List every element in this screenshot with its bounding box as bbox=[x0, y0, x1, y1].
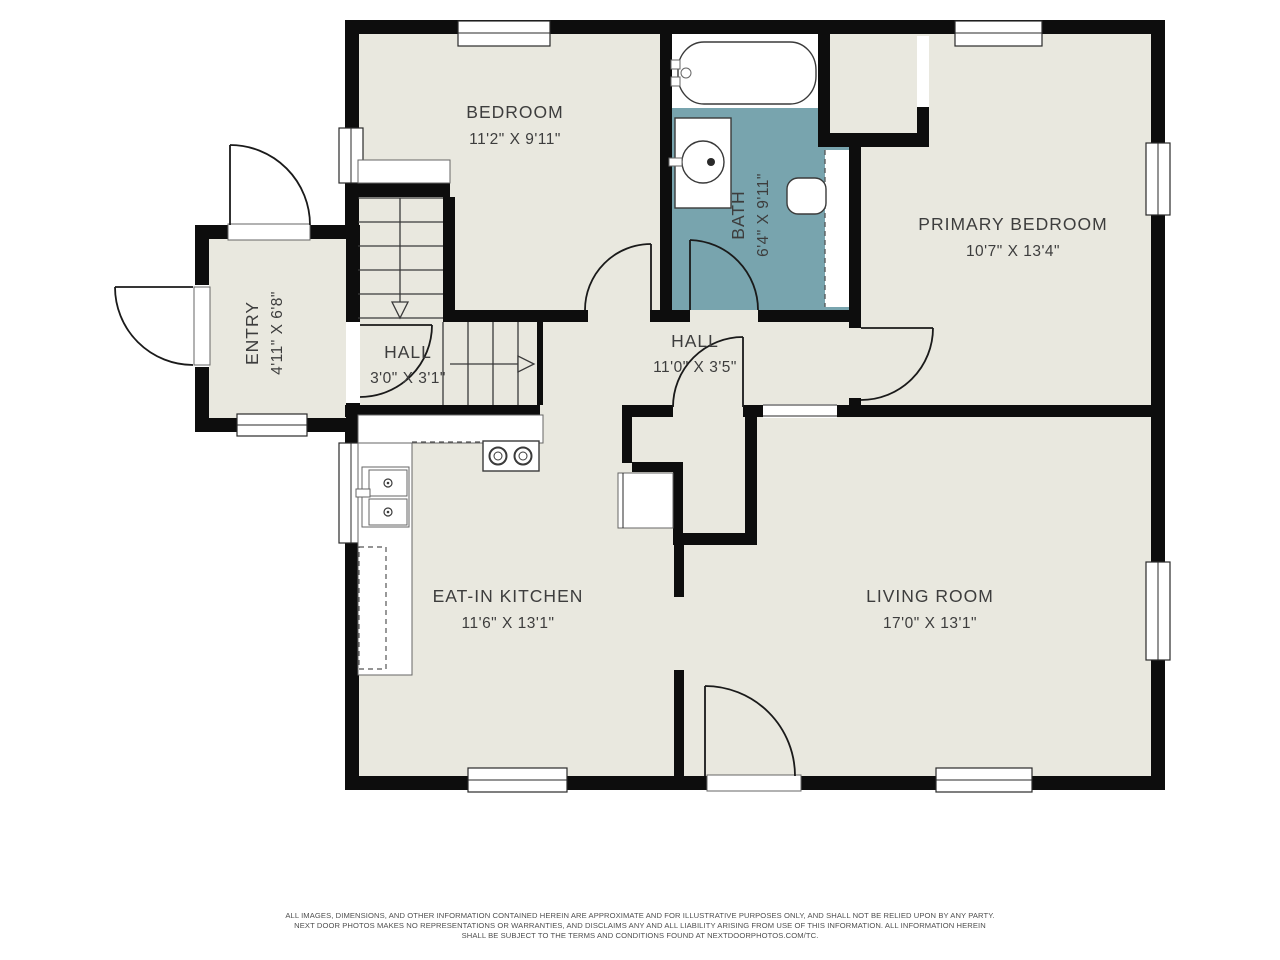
disclaimer: ALL IMAGES, DIMENSIONS, AND OTHER INFORM… bbox=[285, 911, 994, 940]
kitchen-sink-icon bbox=[356, 467, 409, 527]
hall-main-dims: 11'0" X 3'5" bbox=[653, 359, 737, 376]
utility-appliance-icon bbox=[618, 473, 673, 528]
bath-dims: 6'4" X 9'11" bbox=[755, 173, 772, 257]
back-door-sill bbox=[707, 775, 801, 791]
entry-dims: 4'11" X 6'8" bbox=[269, 291, 286, 375]
kitchen-dims: 11'6" X 13'1" bbox=[462, 615, 555, 632]
hall-small-dims: 3'0" X 3'1" bbox=[370, 370, 446, 387]
bedroom-top-window bbox=[458, 21, 550, 46]
floor-plan-page: BEDROOM 11'2" X 9'11" BATH 6'4" X 9'11" … bbox=[0, 0, 1280, 960]
stair-rail bbox=[358, 160, 450, 183]
primary-bedroom-label: PRIMARY BEDROOM bbox=[918, 214, 1107, 234]
floor-plan-drawing: BEDROOM 11'2" X 9'11" BATH 6'4" X 9'11" … bbox=[0, 0, 1280, 960]
bath-alcove bbox=[825, 150, 849, 307]
hall-small-label: HALL bbox=[384, 342, 432, 362]
kitchen-label: EAT-IN KITCHEN bbox=[433, 586, 584, 606]
entry-label: ENTRY bbox=[242, 301, 262, 365]
toilet-icon bbox=[787, 178, 826, 214]
bathroom-sink-icon bbox=[669, 118, 731, 208]
primary-bedroom-dims: 10'7" X 13'4" bbox=[966, 243, 1060, 260]
living-bottom-window bbox=[936, 768, 1032, 792]
disclaimer-line-2: NEXT DOOR PHOTOS MAKES NO REPRESENTATION… bbox=[294, 921, 986, 930]
side-entry-door bbox=[115, 287, 193, 365]
disclaimer-line-3: SHALL BE SUBJECT TO THE TERMS AND CONDIT… bbox=[462, 931, 819, 940]
refrigerator-icon bbox=[359, 547, 386, 669]
stove-icon bbox=[483, 441, 539, 471]
side-door-sill bbox=[194, 287, 210, 365]
front-door bbox=[230, 145, 310, 225]
bath-label: BATH bbox=[728, 190, 748, 239]
bedroom-dims: 11'2" X 9'11" bbox=[469, 131, 561, 148]
disclaimer-line-1: ALL IMAGES, DIMENSIONS, AND OTHER INFORM… bbox=[285, 911, 994, 920]
bathtub-icon bbox=[678, 42, 816, 104]
primary-top-window bbox=[955, 21, 1042, 46]
front-door-sill bbox=[228, 224, 310, 240]
closet-opening bbox=[917, 36, 929, 107]
living-right-window bbox=[1146, 562, 1170, 660]
kitchen-bottom-window bbox=[468, 768, 567, 792]
entry-bottom-window bbox=[237, 414, 307, 436]
entry-hall-opening bbox=[346, 322, 360, 403]
bedroom-label: BEDROOM bbox=[466, 102, 563, 122]
living-room-label: LIVING ROOM bbox=[866, 586, 994, 606]
kitchen-counter-top bbox=[358, 415, 543, 443]
bath-alcove-floor bbox=[825, 150, 849, 307]
living-room-dims: 17'0" X 13'1" bbox=[883, 615, 977, 632]
hall-main-label: HALL bbox=[671, 331, 719, 351]
primary-right-window bbox=[1146, 143, 1170, 215]
hall-living-cased-opening bbox=[763, 404, 837, 418]
